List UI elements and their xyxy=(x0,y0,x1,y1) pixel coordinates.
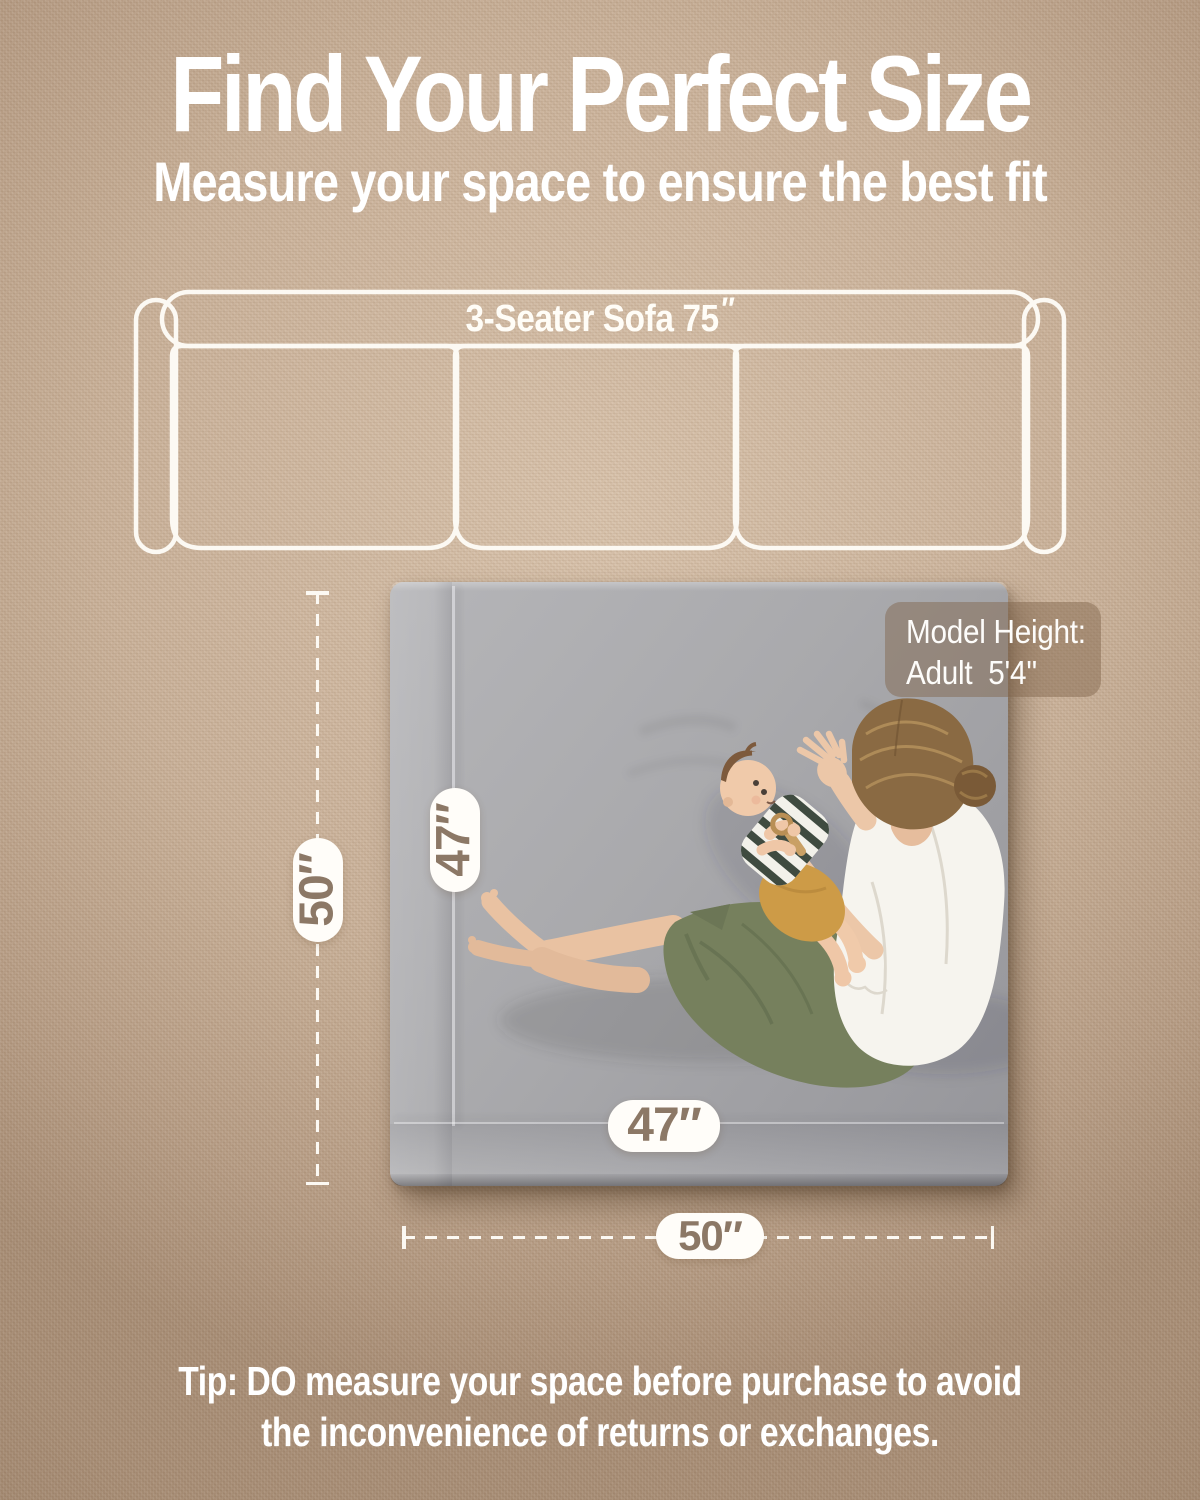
space-width-value: 50″ xyxy=(678,1215,742,1257)
sofa-seat-outline-1 xyxy=(172,346,457,548)
sofa-seat-outline-3 xyxy=(735,346,1028,548)
tip-line1: Tip: DO measure your space before purcha… xyxy=(108,1356,1092,1407)
page-subtitle: Measure your space to ensure the best fi… xyxy=(96,150,1104,214)
mat-width-value: 47″ xyxy=(627,1102,700,1150)
mat-width-label: 47″ xyxy=(608,1100,720,1152)
sofa-size-label: 3-Seater Sofa 75″ xyxy=(72,291,1128,347)
sofa-inch-mark: ″ xyxy=(721,291,734,328)
space-width-label: 50″ xyxy=(656,1213,764,1259)
model-height-line2: Adult 5'4'' xyxy=(906,652,1082,693)
space-height-label: 50″ xyxy=(293,838,343,942)
model-height-line1: Model Height: xyxy=(906,611,1082,652)
sofa-size-label-text: 3-Seater Sofa 75 xyxy=(465,298,718,341)
size-guide-infographic: Find Your Perfect Size Measure your spac… xyxy=(0,0,1200,1500)
tip-text: Tip: DO measure your space before purcha… xyxy=(0,1356,1200,1458)
model-height-badge: Model Height: Adult 5'4'' xyxy=(885,602,1101,697)
mat-height-label: 47″ xyxy=(430,788,480,892)
tip-line2: the inconvenience of returns or exchange… xyxy=(108,1407,1092,1458)
page-title: Find Your Perfect Size xyxy=(108,36,1092,152)
mat-height-value: 47″ xyxy=(431,803,479,876)
space-height-value: 50″ xyxy=(294,853,342,926)
sofa-seat-outline-2 xyxy=(455,346,737,548)
